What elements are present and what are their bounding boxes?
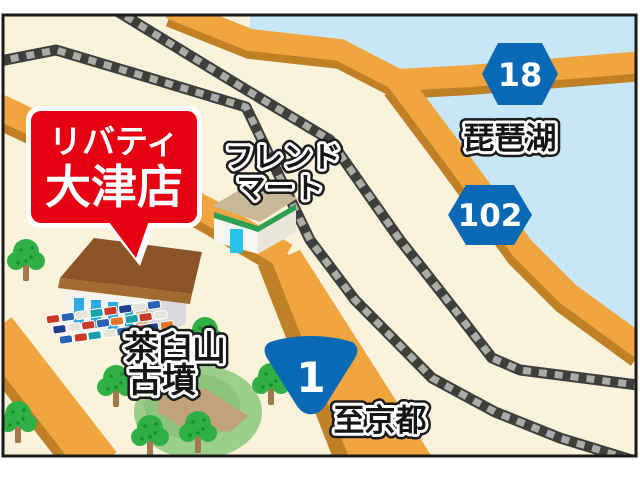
kofun-label-line2: 古墳: [128, 361, 196, 401]
route-18-number: 18: [498, 56, 543, 94]
access-map-page: リバティ 大津店 18 102 1 フレンド マート 琵琶湖 茶臼山 古墳 至京…: [0, 0, 640, 480]
access-map-canvas: リバティ 大津店 18 102 1 フレンド マート 琵琶湖 茶臼山 古墳 至京…: [0, 0, 640, 480]
lake-label: 琵琶湖: [464, 121, 557, 157]
friend-mart-label-line2: マート: [236, 171, 323, 205]
route-shield-18: 18: [482, 43, 558, 105]
friend-mart-label-line1: フレンド: [225, 140, 341, 174]
store-name-line1: リバティ: [49, 122, 179, 161]
route-1-number: 1: [296, 353, 325, 402]
route-102-number: 102: [458, 198, 523, 234]
to-kyoto-label: 至京都: [334, 403, 427, 439]
store-name-line2: 大津店: [45, 160, 183, 214]
